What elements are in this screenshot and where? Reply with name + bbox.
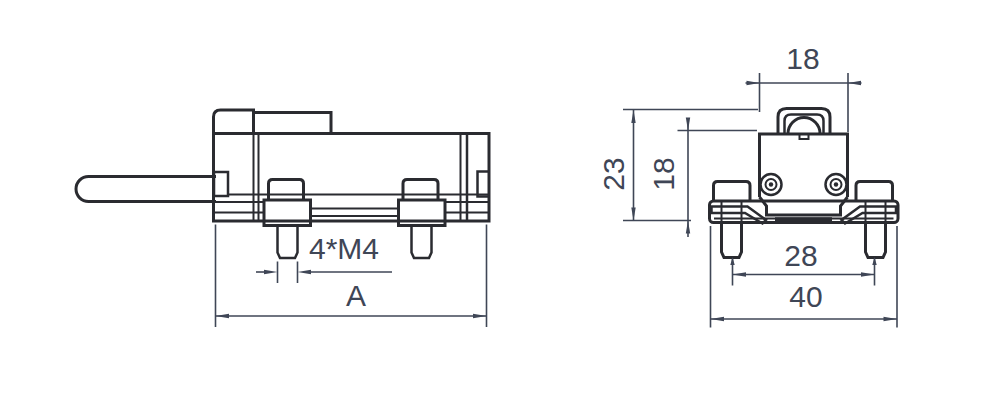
stud-shank [278, 226, 298, 259]
screw-center [834, 182, 838, 186]
dim-label-head-width: 18 [786, 42, 819, 75]
terminal-screw-left [761, 174, 782, 195]
dim-label-body-height: 18 [647, 157, 680, 190]
arrowhead [733, 272, 747, 276]
stud-head-right [856, 182, 893, 202]
arrowhead [848, 81, 861, 85]
front-view: 18 23 18 28 [597, 42, 899, 328]
stud-shank [412, 226, 432, 259]
stud-cap [269, 180, 304, 201]
arrowhead [711, 317, 725, 321]
dim-label-base-width: 40 [789, 280, 822, 313]
arrowhead [631, 208, 635, 221]
din-clip-right [842, 207, 897, 224]
arrowhead [861, 272, 875, 276]
stud-head-left [714, 182, 751, 202]
lever-arm [76, 177, 216, 202]
drawing-canvas: 4*M4 A [0, 0, 1000, 400]
dim-label-thread: 4*M4 [309, 232, 379, 265]
roller-housing [778, 109, 830, 134]
arrowhead [747, 81, 760, 85]
arrowhead [884, 317, 898, 321]
arrowhead [264, 270, 278, 275]
technical-drawing: 4*M4 A [0, 0, 1000, 400]
body-top-cap [214, 110, 254, 134]
mounting-stud-1 [264, 180, 311, 259]
right-notch [478, 172, 490, 197]
arrowhead [631, 110, 635, 123]
arrowhead [298, 270, 312, 275]
front-stud-right [866, 223, 886, 258]
arrowhead [216, 314, 230, 319]
arrowhead [686, 221, 690, 234]
dim-label-length: A [346, 279, 366, 312]
dim-label-total-height: 23 [597, 157, 630, 190]
arrowhead [686, 118, 690, 131]
roller [788, 118, 820, 134]
body-top-notch [254, 113, 332, 134]
arrowhead [473, 314, 487, 319]
side-view: 4*M4 A [76, 110, 489, 327]
screw-center [769, 182, 773, 186]
stud-cap [403, 180, 438, 201]
din-clip-left [712, 207, 767, 224]
terminal-screw-right [826, 174, 847, 195]
switch-head [760, 134, 848, 197]
lever-clamp [214, 172, 228, 196]
front-stud-left [722, 223, 742, 258]
dim-label-stud-spacing: 28 [784, 239, 817, 272]
mounting-stud-2 [399, 180, 446, 259]
